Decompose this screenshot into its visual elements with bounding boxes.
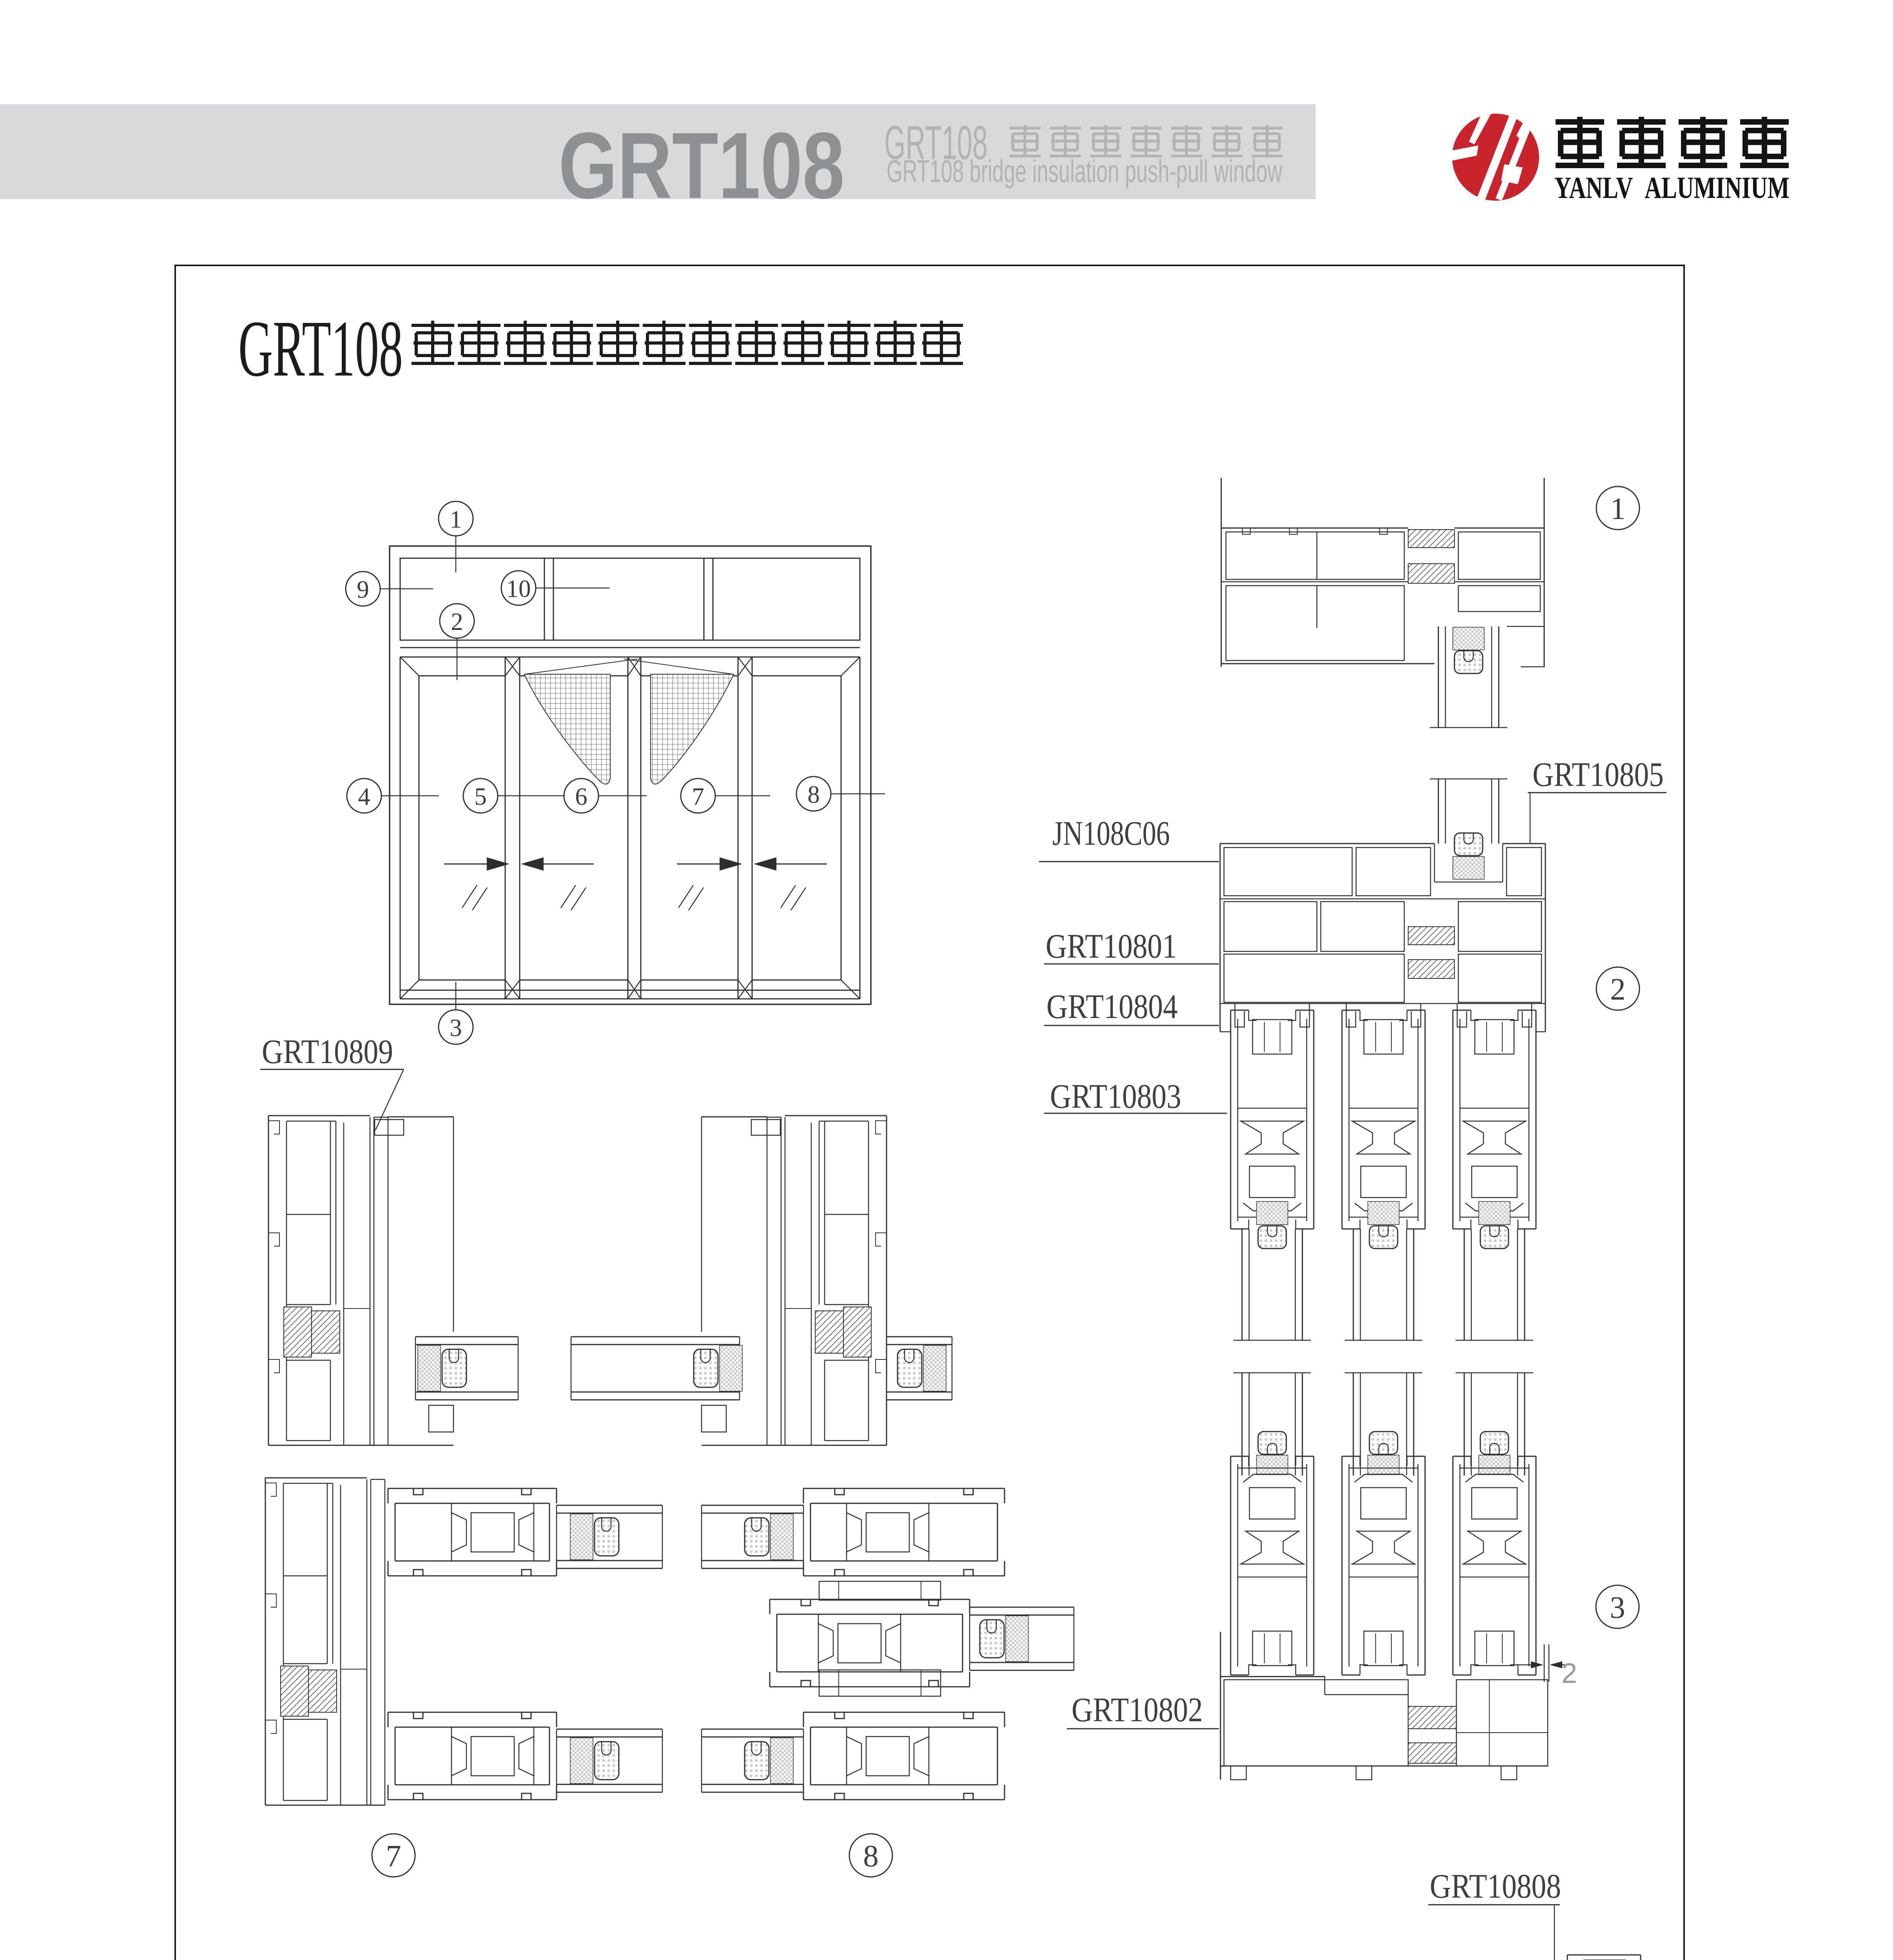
svg-text:GRT10809: GRT10809: [262, 1033, 393, 1071]
svg-text:7: 7: [386, 1839, 401, 1873]
svg-text:GRT10803: GRT10803: [1050, 1078, 1181, 1116]
svg-text:GRT108: GRT108: [558, 113, 845, 218]
svg-text:8: 8: [863, 1839, 879, 1873]
svg-text:GRT10804: GRT10804: [1046, 988, 1178, 1026]
svg-text:YANLV ALUMINIUM: YANLV ALUMINIUM: [1554, 171, 1790, 205]
svg-text:1: 1: [450, 506, 462, 533]
svg-text:8: 8: [807, 781, 820, 808]
svg-text:GRT10805: GRT10805: [1532, 756, 1664, 794]
svg-text:GRT108: GRT108: [238, 304, 403, 393]
svg-text:7: 7: [692, 783, 704, 810]
svg-text:GRT10808: GRT10808: [1430, 1867, 1561, 1906]
svg-text:2: 2: [1610, 973, 1626, 1007]
svg-text:GRT108 bridge insulation push-: GRT108 bridge insulation push-pull windo…: [887, 154, 1282, 189]
svg-text:GRT10802: GRT10802: [1072, 1691, 1203, 1729]
svg-text:1: 1: [1610, 492, 1626, 526]
svg-text:4: 4: [358, 783, 370, 810]
svg-text:JN108C06: JN108C06: [1052, 815, 1170, 853]
svg-text:2: 2: [1561, 1658, 1577, 1689]
svg-text:10: 10: [506, 575, 531, 603]
svg-text:2: 2: [451, 608, 463, 635]
svg-text:3: 3: [1610, 1591, 1625, 1625]
svg-text:5: 5: [474, 783, 487, 810]
svg-text:3: 3: [450, 1014, 462, 1042]
svg-text:6: 6: [575, 783, 587, 810]
svg-text:GRT10801: GRT10801: [1046, 927, 1177, 965]
svg-text:9: 9: [357, 576, 369, 603]
